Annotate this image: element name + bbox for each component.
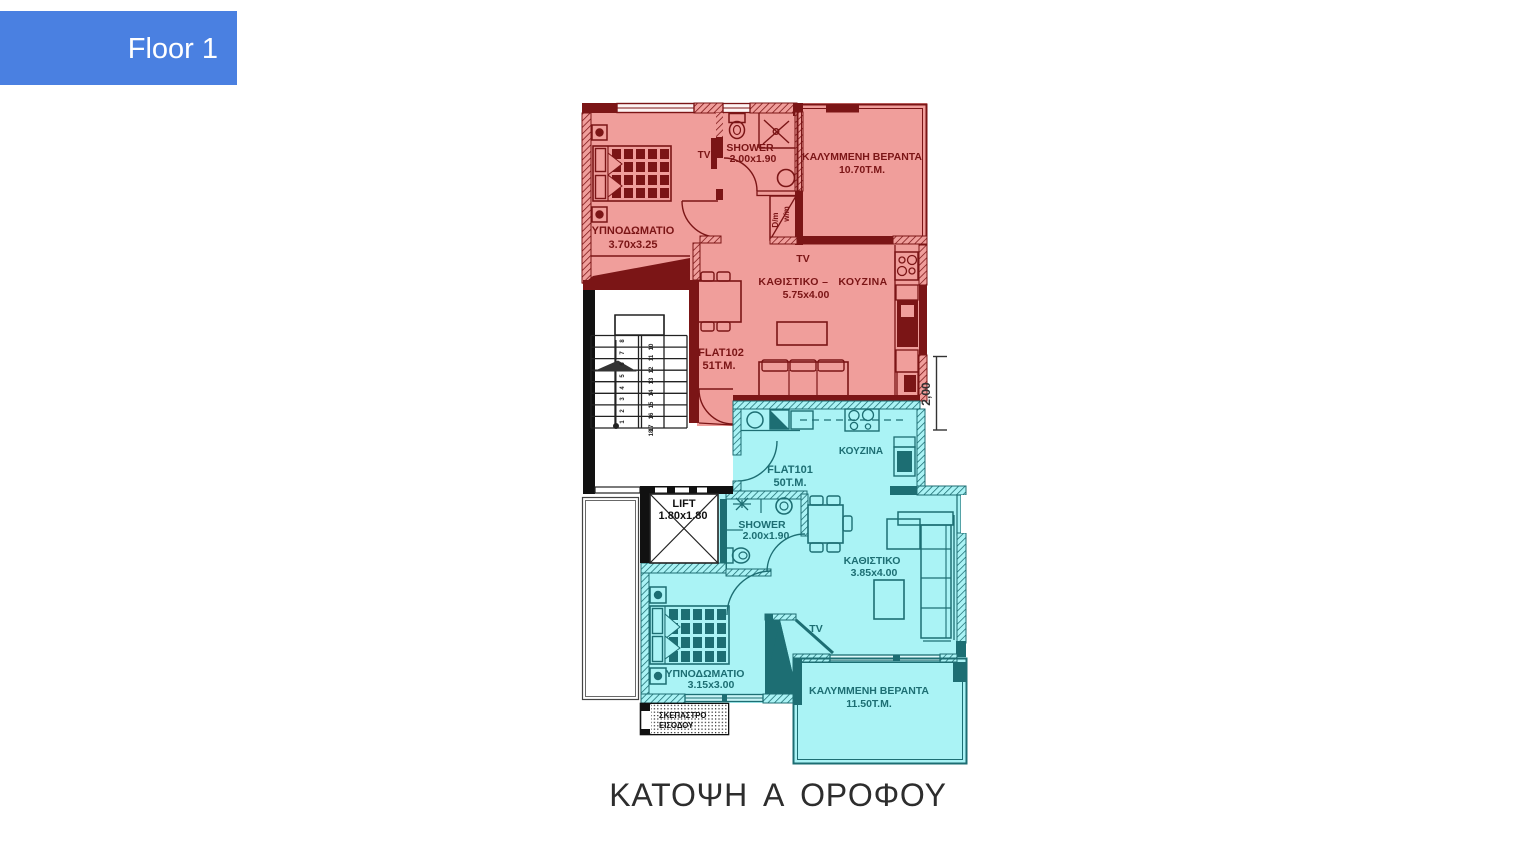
svg-text:16: 16 — [649, 412, 655, 419]
svg-text:FLAT101: FLAT101 — [767, 464, 813, 476]
svg-text:ΚΑΛΥΜΜΕΝΗ ΒΕΡΑΝΤΑ: ΚΑΛΥΜΜΕΝΗ ΒΕΡΑΝΤΑ — [802, 151, 922, 163]
svg-text:15: 15 — [649, 401, 655, 408]
svg-text:3.85x4.00: 3.85x4.00 — [851, 567, 898, 579]
svg-text:ΚΟΥΖΙΝΑ: ΚΟΥΖΙΝΑ — [839, 446, 883, 457]
svg-text:ΣΚΕΠΑΣΤΡΟ: ΣΚΕΠΑΣΤΡΟ — [659, 711, 706, 720]
svg-text:10.70Τ.Μ.: 10.70Τ.Μ. — [839, 164, 885, 176]
svg-text:3.70x3.25: 3.70x3.25 — [609, 239, 658, 251]
svg-text:ΚΑΘΙΣΤΙΚΟ: ΚΑΘΙΣΤΙΚΟ — [844, 555, 901, 567]
svg-text:50Τ.Μ.: 50Τ.Μ. — [773, 477, 806, 489]
svg-text:2,00: 2,00 — [919, 382, 933, 406]
svg-text:51Τ.Μ.: 51Τ.Μ. — [702, 360, 735, 372]
svg-text:13: 13 — [649, 377, 655, 384]
svg-text:10: 10 — [649, 343, 655, 350]
svg-text:ΕΙΣΟΔΟΥ: ΕΙΣΟΔΟΥ — [659, 721, 694, 730]
svg-text:14: 14 — [649, 389, 655, 396]
svg-text:ΚΑΤΟΨΗ Α ΟΡΟΦΟΥ: ΚΑΤΟΨΗ Α ΟΡΟΦΟΥ — [609, 777, 946, 813]
svg-text:1.80x1.80: 1.80x1.80 — [659, 510, 708, 522]
svg-text:Floor 1: Floor 1 — [128, 33, 218, 65]
svg-text:TV: TV — [796, 253, 809, 265]
svg-text:TV: TV — [809, 623, 822, 635]
svg-text:ΥΠΝΟΔΩΜΑΤΙΟ: ΥΠΝΟΔΩΜΑΤΙΟ — [592, 225, 675, 237]
svg-text:2.00x1.90: 2.00x1.90 — [730, 153, 777, 165]
svg-text:LIFT: LIFT — [672, 498, 695, 510]
svg-text:12: 12 — [649, 366, 655, 373]
svg-text:18: 18 — [649, 429, 655, 436]
svg-text:D/m: D/m — [771, 212, 780, 227]
svg-text:2.00x1.90: 2.00x1.90 — [743, 530, 790, 542]
svg-text:11: 11 — [649, 354, 655, 361]
svg-text:ΚΑΘΙΣΤΙΚΟ – ΚΟΥΖΙΝΑ: ΚΑΘΙΣΤΙΚΟ – ΚΟΥΖΙΝΑ — [758, 276, 887, 288]
svg-text:TV: TV — [698, 150, 711, 161]
svg-text:3.15x3.00: 3.15x3.00 — [688, 679, 735, 691]
svg-text:w/m: w/m — [782, 206, 791, 223]
svg-text:ΚΑΛΥΜΜΕΝΗ ΒΕΡΑΝΤΑ: ΚΑΛΥΜΜΕΝΗ ΒΕΡΑΝΤΑ — [809, 685, 929, 697]
svg-text:5.75x4.00: 5.75x4.00 — [783, 289, 830, 301]
svg-text:11.50Τ.Μ.: 11.50Τ.Μ. — [846, 698, 892, 710]
svg-text:FLAT102: FLAT102 — [698, 347, 744, 359]
